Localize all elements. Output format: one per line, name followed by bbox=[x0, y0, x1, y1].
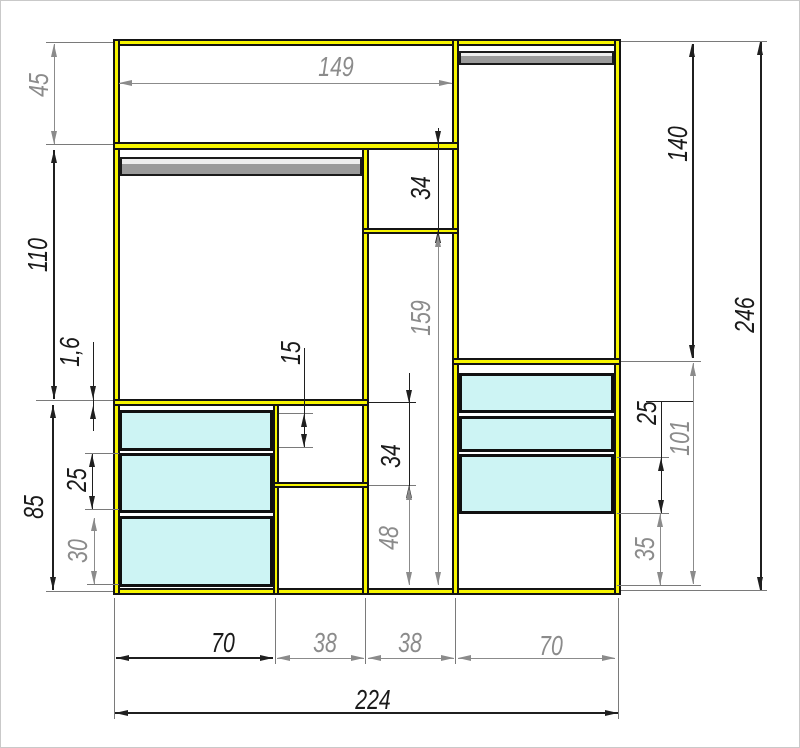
arrow bbox=[689, 44, 695, 57]
dim-line-246 bbox=[760, 42, 762, 590]
dim-label-224: 224 bbox=[355, 686, 391, 714]
dim-label-15: 15 bbox=[277, 341, 305, 365]
dim-label-85: 85 bbox=[20, 495, 48, 519]
dim-label-70-right: 70 bbox=[539, 632, 563, 660]
dim-label-45: 45 bbox=[25, 73, 53, 97]
dim-label-34-mid: 34 bbox=[377, 444, 405, 468]
arrow bbox=[301, 414, 307, 427]
dim-line-159 bbox=[438, 234, 439, 585]
arrow bbox=[435, 572, 441, 585]
arrow bbox=[90, 386, 96, 399]
top-panel bbox=[113, 39, 621, 46]
arrow bbox=[689, 345, 695, 358]
ext-line bbox=[279, 447, 313, 448]
dim-line-48 bbox=[409, 486, 410, 585]
ext-line bbox=[365, 598, 366, 664]
arrow bbox=[439, 80, 452, 86]
arrow bbox=[277, 655, 290, 661]
dim-line-101 bbox=[693, 363, 694, 584]
arrow bbox=[441, 655, 454, 661]
dim-label-30: 30 bbox=[64, 539, 92, 563]
arrow bbox=[91, 518, 97, 531]
dim-label-35: 35 bbox=[631, 537, 659, 561]
dim-label-48: 48 bbox=[375, 526, 403, 550]
arrow bbox=[757, 42, 763, 55]
arrow bbox=[435, 234, 441, 247]
arrow bbox=[115, 710, 128, 716]
ext-line bbox=[275, 598, 276, 664]
arrow bbox=[657, 572, 663, 585]
dim-label-34-top: 34 bbox=[407, 176, 435, 200]
hanging-rod-left bbox=[120, 157, 362, 176]
arrow bbox=[50, 577, 56, 590]
arrow bbox=[406, 572, 412, 585]
drawer-right-2 bbox=[459, 416, 614, 452]
hanging-rod-right bbox=[459, 51, 614, 65]
arrow bbox=[89, 454, 95, 467]
dim-label-159: 159 bbox=[407, 300, 435, 336]
dim-label-25-left: 25 bbox=[63, 468, 91, 492]
drawer-left-3 bbox=[119, 516, 273, 587]
dim-label-38-a: 38 bbox=[313, 629, 337, 657]
ext-line bbox=[618, 598, 619, 719]
dim-line-85 bbox=[52, 405, 54, 590]
shelf-mid-left bbox=[273, 482, 369, 488]
arrow bbox=[690, 363, 696, 376]
dim-label-38-b: 38 bbox=[398, 629, 422, 657]
drawer-right-3 bbox=[459, 454, 614, 514]
dim-label-101: 101 bbox=[666, 420, 694, 456]
right-side-panel bbox=[614, 39, 621, 595]
arrow bbox=[605, 710, 618, 716]
ext-line bbox=[87, 584, 119, 585]
dim-line-149 bbox=[119, 83, 452, 84]
ext-line bbox=[46, 591, 113, 592]
arrow bbox=[260, 655, 273, 661]
arrow bbox=[119, 80, 132, 86]
dim-line-70-right bbox=[458, 658, 615, 659]
ext-line bbox=[114, 598, 115, 719]
arrow bbox=[406, 487, 412, 500]
ext-line bbox=[46, 144, 113, 145]
dim-label-25-right: 25 bbox=[633, 401, 661, 425]
dim-line-34-top bbox=[438, 128, 439, 243]
arrow bbox=[368, 655, 381, 661]
dim-line-45 bbox=[54, 44, 55, 144]
dim-label-110: 110 bbox=[24, 238, 52, 272]
wardrobe-drawing: 45 110 1,6 85 25 30 15 149 34 159 34 48 … bbox=[0, 0, 800, 748]
drawer-right-1 bbox=[459, 373, 614, 413]
arrow bbox=[406, 390, 412, 403]
partition-drawer bbox=[273, 399, 279, 595]
ext-line bbox=[455, 598, 456, 664]
arrow bbox=[51, 44, 57, 57]
ext-line bbox=[617, 585, 701, 586]
shelf-right-column bbox=[452, 358, 621, 365]
ext-line bbox=[46, 42, 113, 43]
arrow bbox=[50, 405, 56, 418]
arrow bbox=[435, 131, 441, 144]
arrow bbox=[51, 131, 57, 144]
arrow bbox=[658, 458, 664, 471]
ext-line bbox=[36, 400, 113, 401]
dim-label-70-left: 70 bbox=[211, 629, 235, 657]
arrow bbox=[458, 655, 471, 661]
arrow bbox=[757, 577, 763, 590]
arrow bbox=[301, 434, 307, 447]
ext-line bbox=[621, 41, 767, 42]
dim-label-149: 149 bbox=[318, 53, 354, 81]
arrow bbox=[91, 571, 97, 584]
arrow bbox=[89, 496, 95, 509]
dim-label-1-6: 1,6 bbox=[56, 337, 84, 367]
arrow bbox=[351, 655, 364, 661]
arrow bbox=[658, 500, 664, 513]
shelf-mid-column bbox=[362, 228, 459, 234]
dim-label-140: 140 bbox=[664, 126, 692, 162]
shelf-top bbox=[113, 142, 459, 150]
shelf-left bbox=[113, 399, 369, 406]
arrow bbox=[51, 150, 57, 163]
dim-line-70-left bbox=[116, 657, 273, 659]
arrow bbox=[602, 655, 615, 661]
drawer-left-2 bbox=[119, 453, 273, 513]
arrow bbox=[51, 386, 57, 399]
partition-middle bbox=[362, 142, 369, 595]
dim-line-140 bbox=[692, 44, 694, 358]
ext-line bbox=[85, 509, 119, 510]
arrow bbox=[690, 571, 696, 584]
arrow bbox=[657, 514, 663, 527]
partition-right bbox=[452, 39, 459, 595]
arrow bbox=[116, 655, 129, 661]
dim-label-246: 246 bbox=[731, 297, 759, 333]
ext-line bbox=[621, 590, 767, 591]
drawer-left-1 bbox=[119, 410, 273, 451]
arrow bbox=[90, 406, 96, 419]
ext-line bbox=[279, 413, 313, 414]
ext-line bbox=[621, 361, 701, 362]
